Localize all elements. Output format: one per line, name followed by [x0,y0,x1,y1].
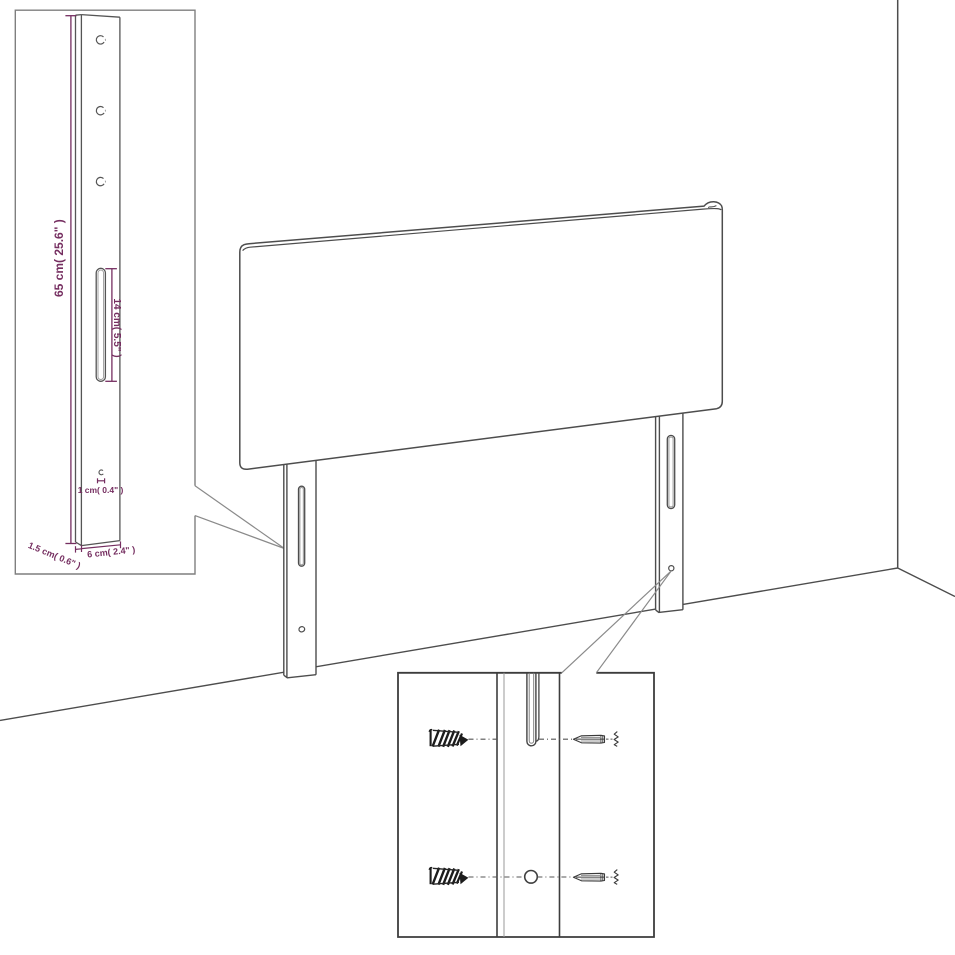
svg-text:65 cm( 25.6" ): 65 cm( 25.6" ) [52,219,66,297]
svg-text:1.5 cm( 0.6" ): 1.5 cm( 0.6" ) [27,540,82,571]
svg-text:14 cm( 5.5" ): 14 cm( 5.5" ) [111,298,122,357]
svg-text:6 cm( 2.4" ): 6 cm( 2.4" ) [87,544,136,559]
svg-text:1 cm( 0.4" ): 1 cm( 0.4" ) [78,485,124,495]
